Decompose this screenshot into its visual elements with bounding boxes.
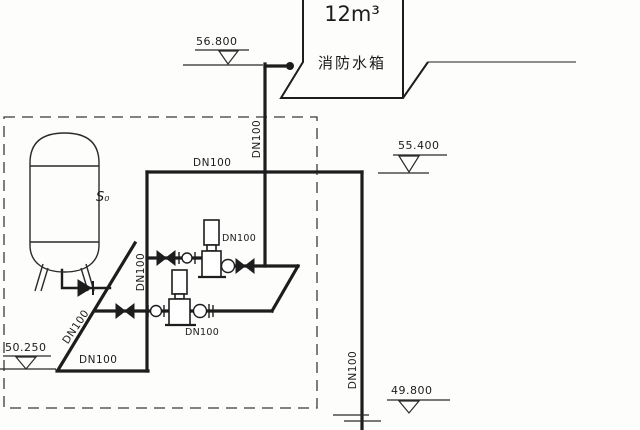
elevation-marker-riser-bottom bbox=[387, 400, 450, 413]
discharge-join-pipe bbox=[272, 266, 298, 311]
vessel-branch-valve bbox=[116, 304, 134, 318]
pipe-label-upper-pump: DN100 bbox=[222, 233, 256, 244]
pipe-label-right-riser: DN100 bbox=[347, 347, 359, 393]
lower-flex-joint bbox=[151, 306, 162, 317]
discharge-flex-joint bbox=[222, 260, 235, 273]
elevation-value-floor: 50.250 bbox=[5, 341, 47, 354]
pipe-label-tank-riser: DN100 bbox=[251, 116, 263, 162]
tank-name-label: 消防水箱 bbox=[300, 52, 404, 73]
check-valve bbox=[194, 305, 207, 318]
elevation-value-main-pipe: 55.400 bbox=[398, 139, 440, 152]
elevation-marker-floor bbox=[0, 356, 56, 369]
vessel-outlet-valve bbox=[78, 280, 91, 296]
elevation-marker-tank-inlet bbox=[183, 50, 263, 65]
pipe-label-top-main: DN100 bbox=[193, 157, 231, 169]
piping-schematic: 12m³ 消防水箱 S₀ 56.800 55.400 50.250 49.800… bbox=[0, 0, 640, 430]
vessel-label: S₀ bbox=[96, 190, 109, 205]
pipe-label-lower-pump: DN100 bbox=[185, 327, 219, 338]
pipe-label-suction-header: DN100 bbox=[135, 249, 147, 295]
elevation-value-riser-bottom: 49.800 bbox=[391, 384, 433, 397]
elevation-marker-main-pipe bbox=[378, 155, 447, 173]
upper-suction-valve bbox=[157, 251, 175, 265]
tank-volume-label: 12m³ bbox=[300, 2, 404, 26]
lower-pump bbox=[165, 270, 196, 325]
elevation-value-tank-inlet: 56.800 bbox=[196, 35, 238, 48]
diagonal-suction-pipe bbox=[58, 243, 135, 370]
upper-discharge-valve bbox=[236, 259, 254, 273]
upper-flex-joint bbox=[182, 253, 192, 263]
pipe-label-bottom-pipe: DN100 bbox=[79, 354, 117, 366]
pipe-break-symbol bbox=[333, 415, 381, 421]
tank-connection-dot bbox=[286, 62, 294, 70]
pressure-vessel bbox=[30, 133, 99, 291]
